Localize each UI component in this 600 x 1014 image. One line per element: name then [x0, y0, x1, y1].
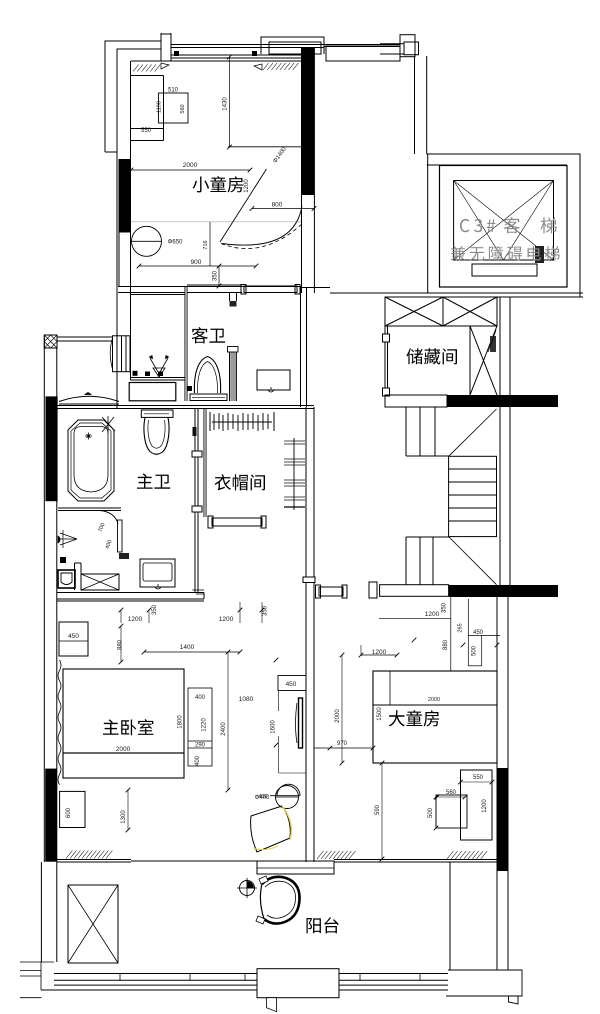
svg-text:560: 560 [180, 104, 186, 113]
svg-text:400: 400 [105, 539, 114, 550]
svg-text:350: 350 [442, 602, 448, 613]
svg-text:1600: 1600 [271, 720, 277, 734]
svg-text:1190: 1190 [157, 101, 163, 113]
svg-text:350: 350 [152, 604, 158, 615]
svg-text:2000: 2000 [116, 746, 131, 753]
svg-text:1200: 1200 [425, 611, 440, 618]
svg-text:1430: 1430 [223, 97, 229, 111]
svg-text:1400: 1400 [180, 644, 195, 651]
svg-text:Φ400: Φ400 [255, 795, 270, 801]
svg-text:400: 400 [195, 695, 206, 701]
svg-text:Φ1400: Φ1400 [273, 146, 289, 165]
svg-text:1300: 1300 [121, 810, 127, 824]
svg-text:700: 700 [98, 522, 107, 533]
svg-text:600: 600 [66, 807, 72, 818]
svg-text:970: 970 [337, 741, 348, 747]
svg-text:1080: 1080 [239, 696, 254, 703]
svg-text:900: 900 [191, 259, 202, 266]
svg-text:350: 350 [263, 605, 269, 616]
svg-text:500: 500 [428, 807, 434, 818]
svg-text:880: 880 [443, 639, 449, 650]
svg-text:1500: 1500 [377, 707, 383, 721]
svg-text:1220: 1220 [202, 718, 208, 732]
svg-text:1200: 1200 [219, 616, 234, 623]
svg-text:1200: 1200 [244, 179, 250, 193]
svg-text:1800: 1800 [178, 715, 184, 729]
svg-text:560: 560 [446, 790, 457, 796]
svg-text:510: 510 [168, 88, 179, 94]
svg-text:265: 265 [458, 623, 464, 632]
svg-text:2000: 2000 [335, 709, 341, 723]
svg-text:880: 880 [118, 639, 124, 650]
svg-text:550: 550 [141, 128, 152, 134]
svg-text:Φ650: Φ650 [168, 240, 183, 246]
svg-text:2000: 2000 [183, 162, 198, 169]
svg-text:450: 450 [286, 681, 297, 688]
svg-text:400: 400 [195, 755, 201, 766]
svg-text:2400: 2400 [221, 722, 227, 736]
svg-text:450: 450 [68, 633, 79, 640]
svg-text:500: 500 [472, 645, 478, 656]
svg-text:290: 290 [195, 743, 206, 749]
svg-text:450: 450 [473, 630, 484, 636]
svg-text:1200: 1200 [482, 799, 488, 813]
svg-text:550: 550 [473, 775, 484, 781]
svg-text:350: 350 [213, 270, 219, 281]
svg-text:1200: 1200 [128, 616, 143, 623]
svg-text:800: 800 [272, 202, 283, 209]
svg-text:590: 590 [375, 804, 381, 815]
svg-text:2000: 2000 [428, 697, 440, 703]
svg-text:716: 716 [203, 240, 209, 249]
